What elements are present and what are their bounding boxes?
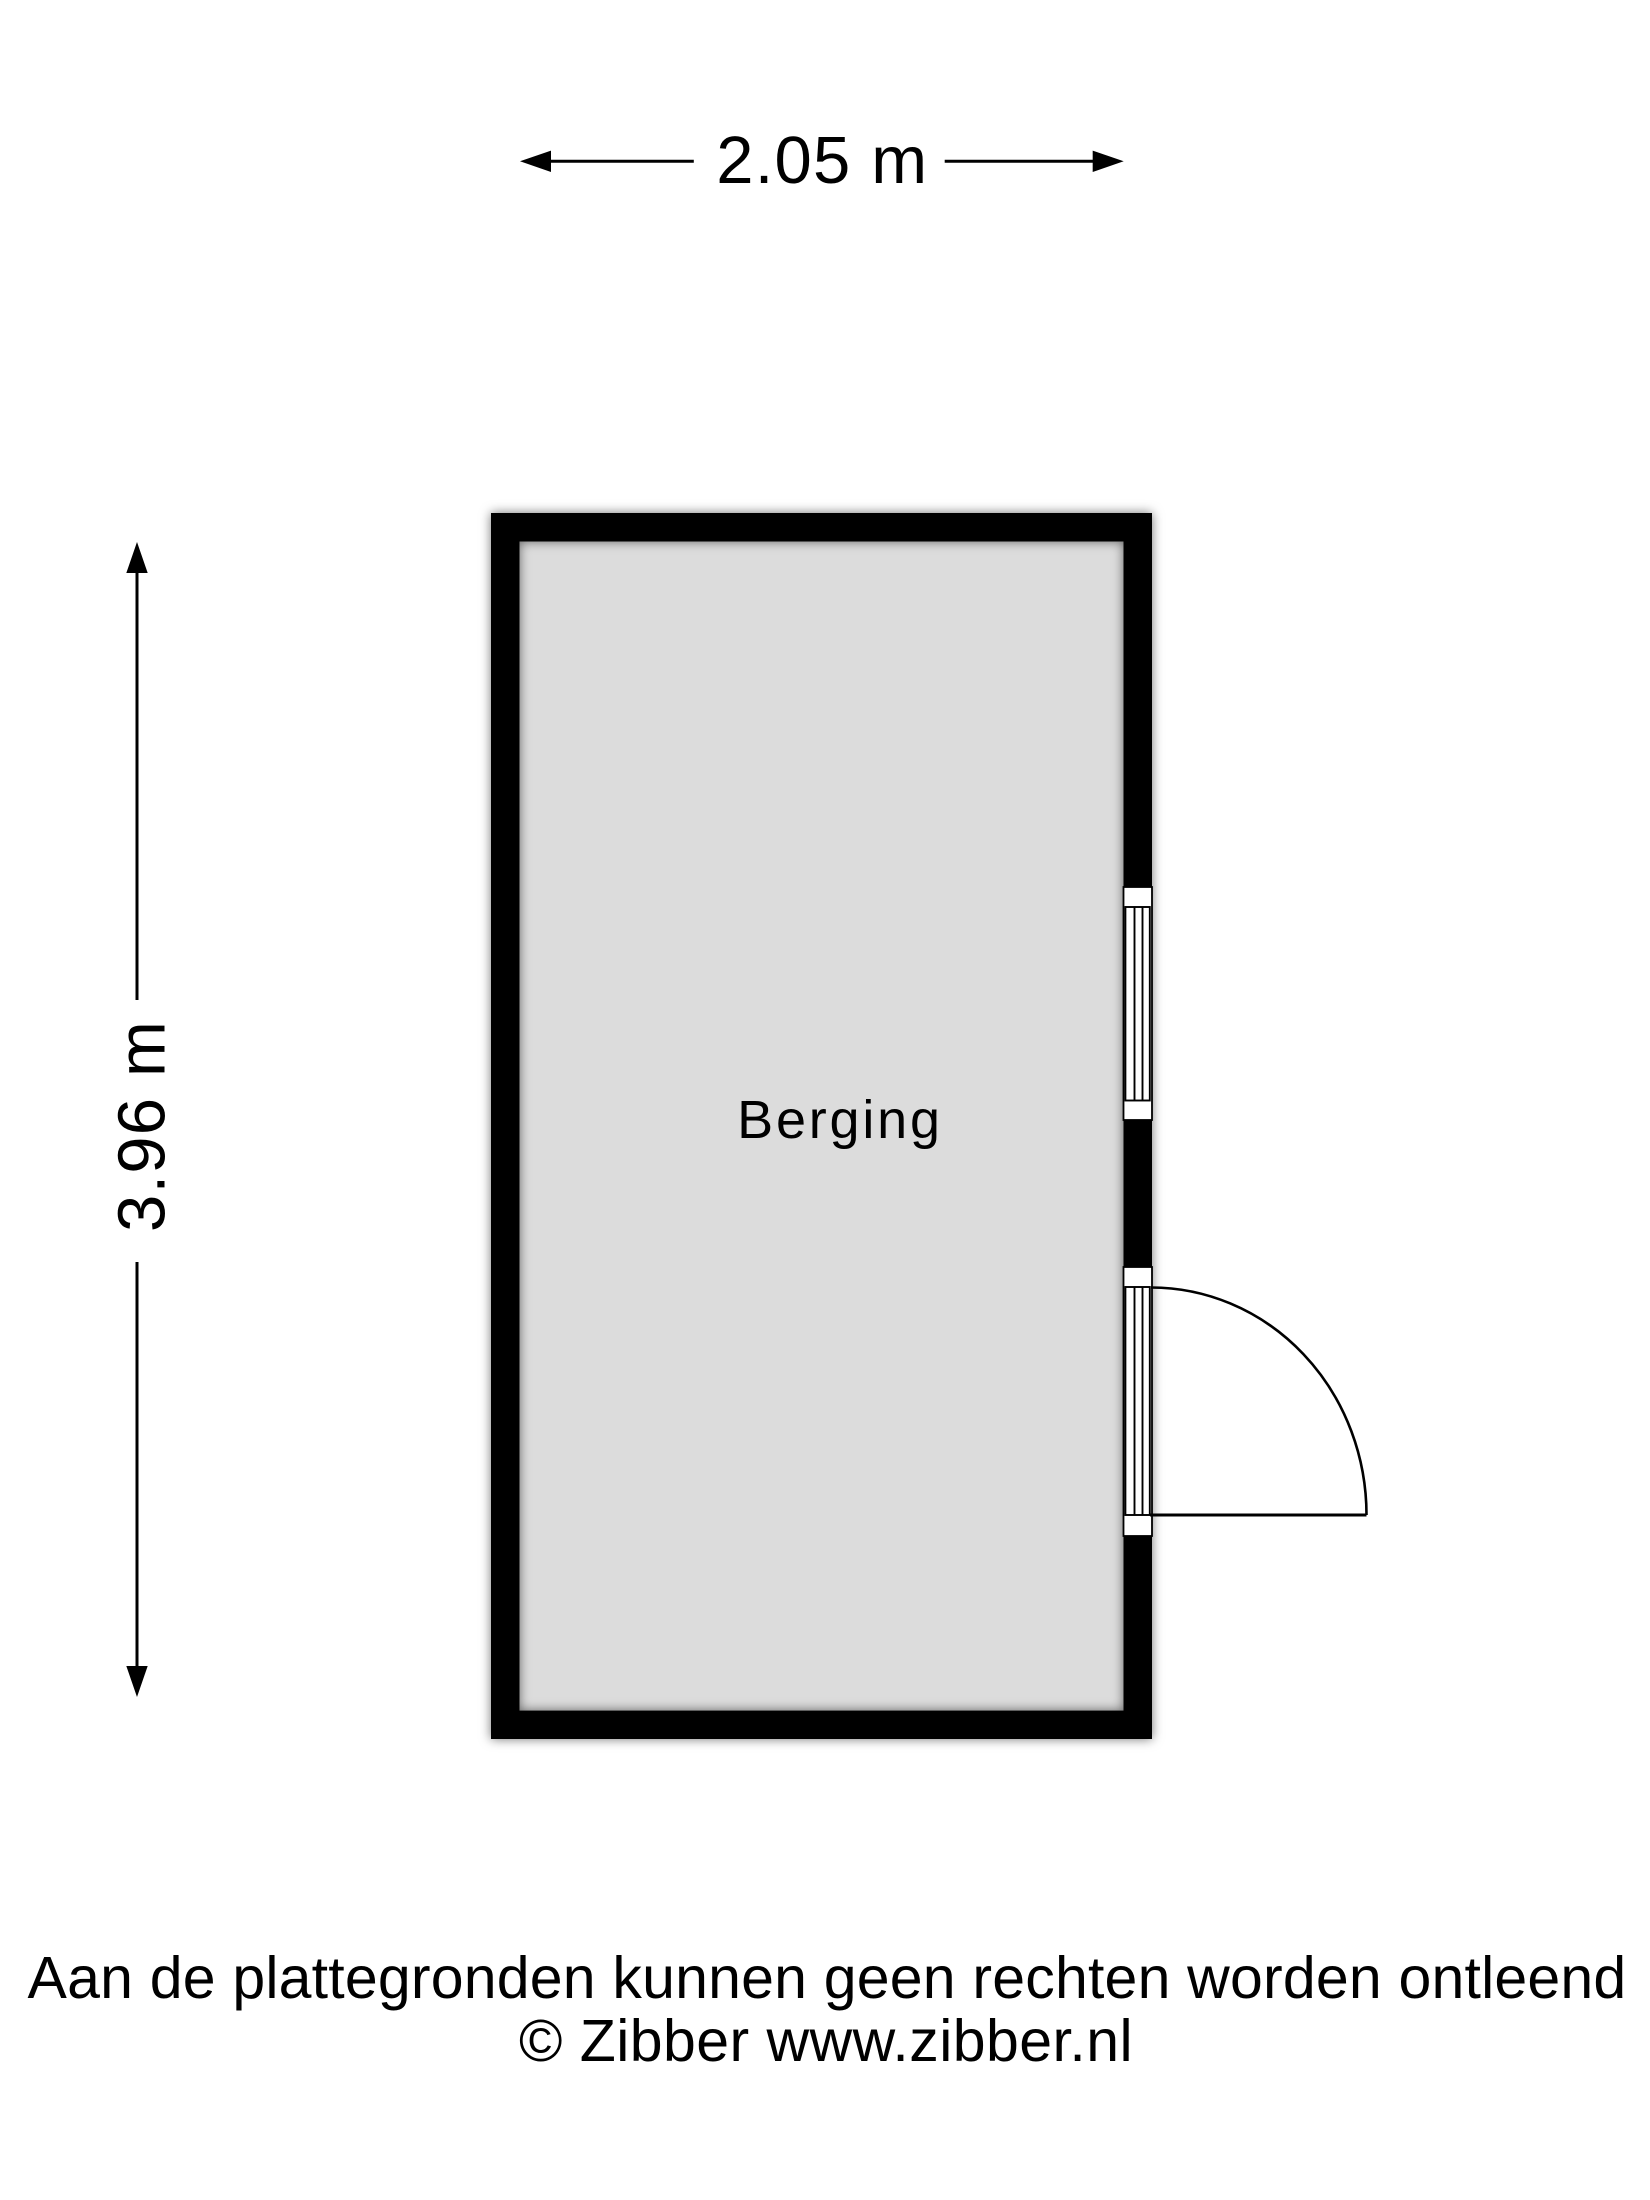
svg-text:3.96 m: 3.96 m (105, 1020, 180, 1232)
svg-text:© Zibber www.zibber.nl: © Zibber www.zibber.nl (519, 2008, 1133, 2074)
svg-text:Berging: Berging (737, 1090, 943, 1150)
svg-text:2.05 m: 2.05 m (716, 123, 928, 198)
svg-text:Aan de plattegronden kunnen ge: Aan de plattegronden kunnen geen rechten… (28, 1945, 1627, 2011)
